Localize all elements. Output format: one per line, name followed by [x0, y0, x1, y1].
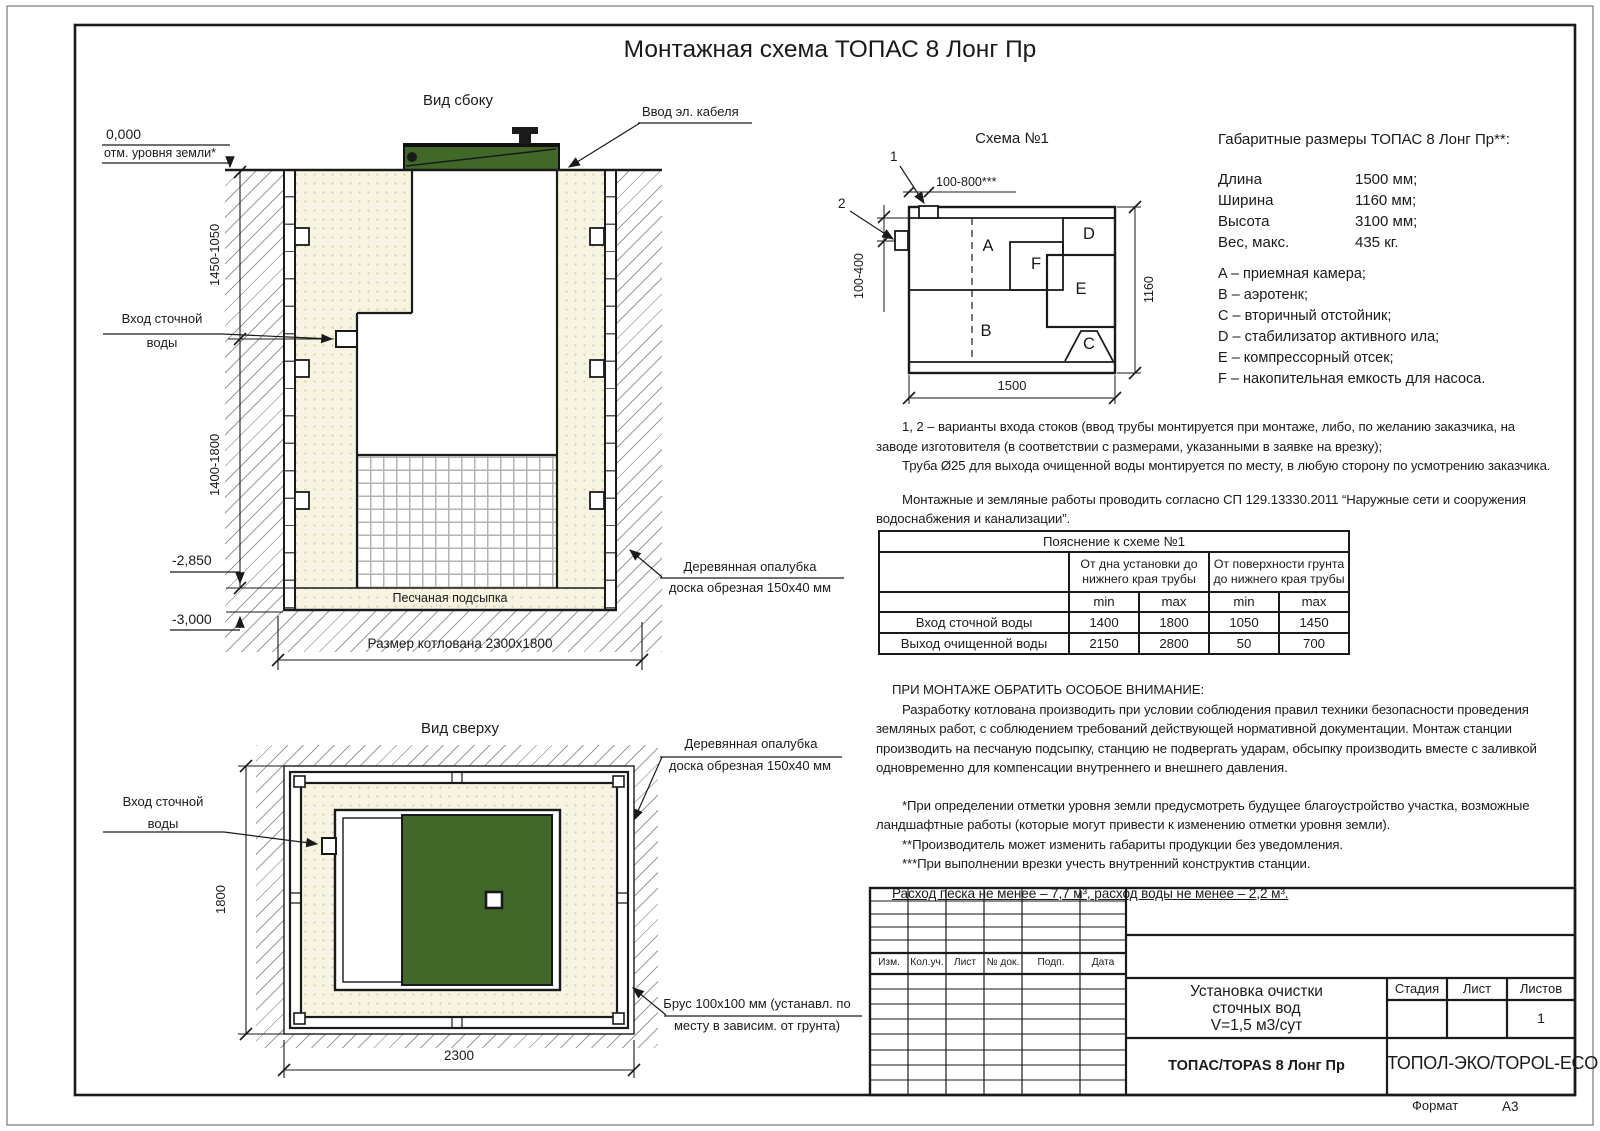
- table-group-2: От поверхности грунта до нижнего края тр…: [1209, 552, 1349, 592]
- side-view-inlet-stub: [336, 331, 357, 347]
- legend-item-c: C – вторичный отстойник;: [1218, 308, 1391, 325]
- footnote-1: *При определении отметки уровня земли пр…: [876, 796, 1552, 835]
- product-name: ТОПАС/TOPAS 8 Лонг Пр: [1126, 1058, 1387, 1075]
- pit-size-label: Размер котлована 2300x1800: [340, 636, 580, 652]
- tb-header-koluch: Кол.уч.: [908, 957, 946, 969]
- elevation-minus-3000: -3,000: [172, 611, 212, 627]
- table-title: Пояснение к схеме №1: [879, 531, 1349, 552]
- cable-entry-label: Ввод эл. кабеля: [642, 105, 739, 120]
- drawing-sheet: Монтажная схема ТОПАС 8 Лонг Пр Вид сбок…: [0, 0, 1600, 1131]
- side-inlet-label-2: воды: [100, 336, 224, 351]
- table-empty-cell: [879, 592, 1069, 612]
- footnote-2: **Производитель может изменить габариты …: [876, 835, 1552, 855]
- consumption-note: Расход песка не менее – 7,7 м³, расход в…: [876, 884, 1552, 904]
- note-inlet-variants: 1, 2 – варианты входа стоков (ввод трубы…: [876, 417, 1552, 456]
- table-min-1: min: [1069, 592, 1139, 612]
- elevation-minus-2850: -2,850: [172, 552, 212, 568]
- beam-label-1: Брус 100x100 мм (устанавл. по: [650, 997, 864, 1012]
- footnote-3: ***При выполнении врезки учесть внутренн…: [876, 854, 1552, 874]
- top-formwork-label-1: Деревянная опалубка: [656, 737, 846, 752]
- top-view-lines: [284, 766, 634, 1034]
- note-sp-standard: Монтажные и земляные работы проводить со…: [876, 490, 1552, 529]
- table-min-2: min: [1209, 592, 1279, 612]
- legend-item-d: D – стабилизатор активного ила;: [1218, 329, 1439, 346]
- schema-dim-top: 100-800***: [936, 175, 996, 189]
- doc-title-line-2: сточных вод: [1126, 1000, 1387, 1018]
- schema-comp-f: F: [1024, 255, 1048, 274]
- side-inlet-label-1: Вход сточной: [100, 312, 224, 327]
- schema-inlet-1: [919, 206, 938, 218]
- spec-value-width: 1160 мм;: [1355, 192, 1416, 209]
- table-row: Вход сточной воды 1400 1800 1050 1450: [879, 612, 1349, 633]
- legend-item-e: E – компрессорный отсек;: [1218, 350, 1394, 367]
- schema-comp-d: D: [1077, 225, 1101, 244]
- side-view-title: Вид сбоку: [398, 92, 518, 109]
- row-inlet-v1: 1400: [1069, 612, 1139, 633]
- zero-elevation-mark: 0,000: [106, 126, 141, 142]
- sheets-count: 1: [1507, 1010, 1575, 1026]
- dim-depth-lower: 1400-1800: [206, 398, 224, 532]
- top-formwork-label-2: доска обрезная 150x40 мм: [650, 759, 850, 774]
- sheet-title: Монтажная схема ТОПАС 8 Лонг Пр: [600, 36, 1060, 64]
- tb-header-ndok: № док.: [984, 957, 1022, 969]
- tb-header-data: Дата: [1080, 957, 1126, 969]
- top-view-title: Вид сверху: [400, 720, 520, 737]
- attention-heading: ПРИ МОНТАЖЕ ОБРАТИТЬ ОСОБОЕ ВНИМАНИЕ:: [876, 680, 1552, 700]
- row-inlet-v2: 1800: [1139, 612, 1209, 633]
- tb-header-podp: Подп.: [1022, 957, 1080, 969]
- row-inlet-label: Вход сточной воды: [879, 612, 1069, 633]
- format-value: А3: [1502, 1099, 1519, 1115]
- schema-dim-1160: 1160: [1140, 258, 1158, 322]
- explanation-table: Пояснение к схеме №1 От дна установки до…: [878, 530, 1350, 655]
- row-outlet-v1: 2150: [1069, 633, 1139, 654]
- schema-marker-1: 1: [890, 149, 898, 165]
- company-name: ТОПОЛ-ЭКО/TOPOL-ECO: [1387, 1053, 1575, 1074]
- specs-title: Габаритные размеры ТОПАС 8 Лонг Пр**:: [1218, 131, 1510, 148]
- sheets-label: Листов: [1507, 982, 1575, 997]
- notes-block: 1, 2 – варианты входа стоков (ввод трубы…: [876, 417, 1552, 529]
- row-inlet-v4: 1450: [1279, 612, 1349, 633]
- legend-item-f: F – накопительная емкость для насоса.: [1218, 371, 1485, 388]
- format-label: Формат: [1412, 1099, 1458, 1114]
- side-view-lines: [225, 149, 662, 610]
- row-outlet-v4: 700: [1279, 633, 1349, 654]
- schema-dim-1500: 1500: [972, 379, 1052, 394]
- tb-header-izm: Изм.: [870, 957, 908, 969]
- top-inlet-label-2: воды: [101, 817, 225, 832]
- schema-dim-ticks: [878, 187, 1141, 404]
- row-outlet-v2: 2800: [1139, 633, 1209, 654]
- spec-label-weight: Вес, макс.: [1218, 234, 1289, 251]
- schema-leaders: [850, 166, 924, 239]
- doc-title-line-3: V=1,5 м3/сут: [1126, 1017, 1387, 1035]
- note-outlet-pipe: Труба Ø25 для выхода очищенной воды монт…: [876, 456, 1552, 476]
- top-view-vent: [486, 892, 502, 908]
- legend-item-b: B – аэротенк;: [1218, 287, 1308, 304]
- top-view-lid: [402, 815, 552, 985]
- schema-dim-left: 100-400: [850, 240, 868, 312]
- dim-2300: 2300: [409, 1048, 509, 1064]
- beam-label-2: месту в зависим. от грунта): [650, 1019, 864, 1034]
- row-outlet-label: Выход очищенной воды: [879, 633, 1069, 654]
- top-view-inlet-stub: [322, 838, 336, 854]
- schema-comp-c: C: [1077, 335, 1101, 354]
- table-group-1: От дна установки до нижнего края трубы: [1069, 552, 1209, 592]
- legend-item-a: A – приемная камера;: [1218, 266, 1366, 283]
- lid-latch-dot: [407, 152, 417, 162]
- zero-elevation-sub: отм. уровня земли*: [104, 146, 216, 160]
- spec-label-width: Ширина: [1218, 192, 1273, 209]
- top-inlet-label-1: Вход сточной: [101, 795, 225, 810]
- schema-title: Схема №1: [952, 130, 1072, 147]
- schema-comp-a: A: [975, 237, 1001, 256]
- dim-1800: 1800: [212, 840, 230, 960]
- schema-comp-e: E: [1069, 280, 1093, 299]
- table-row: Выход очищенной воды 2150 2800 50 700: [879, 633, 1349, 654]
- spec-label-height: Высота: [1218, 213, 1270, 230]
- doc-title-line-1: Установка очистки: [1126, 983, 1387, 1001]
- row-outlet-v3: 50: [1209, 633, 1279, 654]
- spec-value-length: 1500 мм;: [1355, 171, 1417, 188]
- table-max-2: max: [1279, 592, 1349, 612]
- stage-label: Стадия: [1387, 982, 1447, 997]
- schema-comp-b: B: [973, 322, 999, 341]
- spec-value-weight: 435 кг.: [1355, 234, 1399, 251]
- table-max-1: max: [1139, 592, 1209, 612]
- spec-value-height: 3100 мм;: [1355, 213, 1417, 230]
- dim-depth-upper: 1450-1050: [206, 193, 224, 317]
- side-formwork-label-1: Деревянная опалубка: [658, 560, 842, 575]
- spec-label-length: Длина: [1218, 171, 1262, 188]
- row-inlet-v3: 1050: [1209, 612, 1279, 633]
- side-formwork-label-2: доска обрезная 150x40 мм: [652, 581, 848, 596]
- table-corner-cell: [879, 552, 1069, 592]
- schema-marker-2: 2: [838, 196, 846, 212]
- tb-header-list: Лист: [946, 957, 984, 969]
- sheet-label: Лист: [1447, 982, 1507, 997]
- sand-bed-label: Песчаная подсыпка: [370, 591, 530, 605]
- attention-block: ПРИ МОНТАЖЕ ОБРАТИТЬ ОСОБОЕ ВНИМАНИЕ: Ра…: [876, 680, 1552, 903]
- attention-body: Разработку котлована производить при усл…: [876, 700, 1552, 778]
- schema-inlet-2: [895, 231, 908, 250]
